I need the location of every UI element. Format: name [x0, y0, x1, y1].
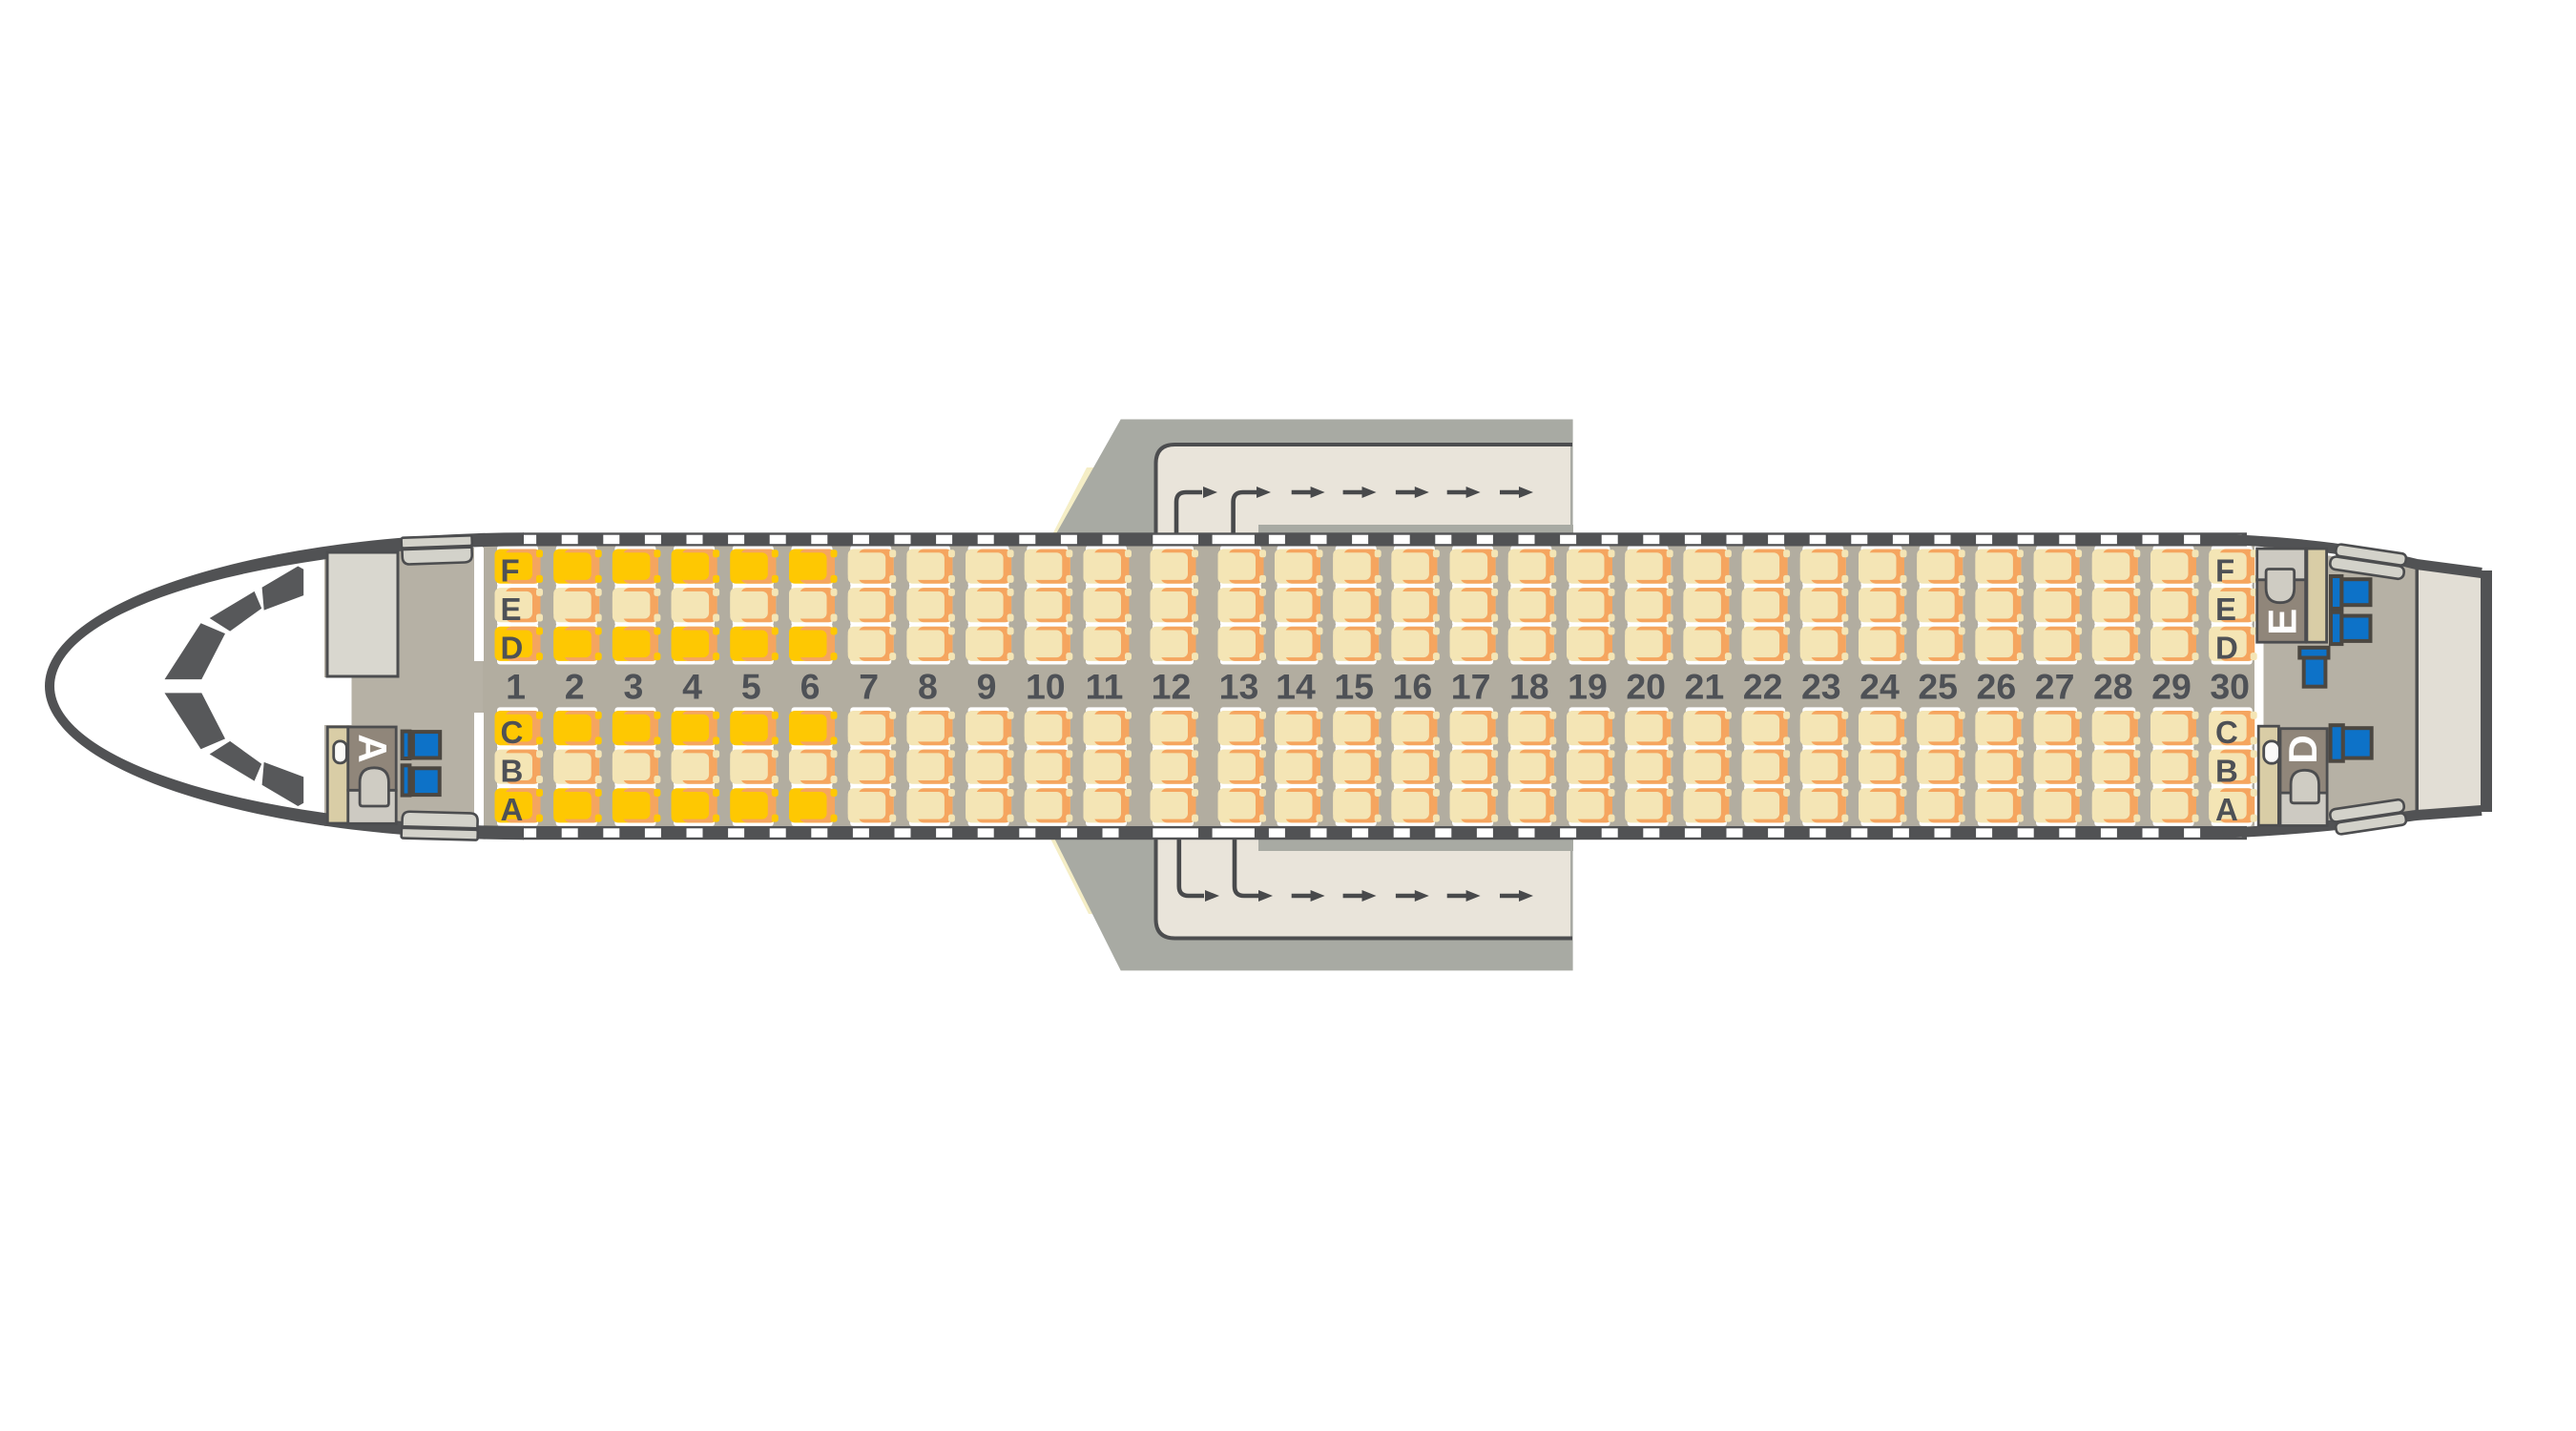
svg-text:16: 16 — [1393, 667, 1433, 707]
svg-text:2: 2 — [565, 667, 585, 707]
svg-text:C: C — [501, 715, 524, 750]
svg-text:28: 28 — [2093, 667, 2133, 707]
svg-text:29: 29 — [2151, 667, 2192, 707]
svg-text:19: 19 — [1568, 667, 1608, 707]
svg-text:D: D — [2215, 631, 2238, 666]
svg-text:20: 20 — [1626, 667, 1666, 707]
svg-text:21: 21 — [1685, 667, 1725, 707]
svg-text:24: 24 — [1859, 667, 1900, 707]
svg-text:12: 12 — [1152, 667, 1192, 707]
svg-text:8: 8 — [918, 667, 938, 707]
svg-text:18: 18 — [1509, 667, 1549, 707]
svg-text:14: 14 — [1276, 667, 1316, 707]
svg-text:F: F — [501, 553, 520, 589]
svg-text:22: 22 — [1743, 667, 1783, 707]
svg-text:4: 4 — [682, 667, 702, 707]
svg-text:A: A — [350, 734, 395, 762]
svg-text:E: E — [2259, 609, 2304, 635]
svg-text:6: 6 — [800, 667, 821, 707]
svg-text:D: D — [501, 631, 524, 666]
svg-text:15: 15 — [1334, 667, 1374, 707]
svg-text:B: B — [501, 754, 524, 789]
svg-text:26: 26 — [1977, 667, 2017, 707]
svg-text:5: 5 — [741, 667, 761, 707]
svg-text:C: C — [2215, 715, 2238, 750]
svg-text:D: D — [2280, 735, 2325, 763]
svg-text:B: B — [2215, 754, 2238, 789]
svg-text:A: A — [2215, 792, 2238, 827]
svg-text:1: 1 — [506, 667, 526, 707]
svg-text:7: 7 — [859, 667, 879, 707]
svg-text:17: 17 — [1451, 667, 1491, 707]
svg-text:10: 10 — [1026, 667, 1066, 707]
svg-text:23: 23 — [1801, 667, 1841, 707]
svg-text:E: E — [2215, 591, 2236, 627]
svg-text:3: 3 — [623, 667, 643, 707]
svg-text:E: E — [501, 591, 522, 627]
svg-text:27: 27 — [2035, 667, 2075, 707]
svg-text:A: A — [501, 792, 524, 827]
svg-text:25: 25 — [1918, 667, 1958, 707]
svg-text:F: F — [2215, 553, 2234, 589]
svg-text:13: 13 — [1219, 667, 1259, 707]
svg-text:11: 11 — [1086, 667, 1124, 707]
svg-text:30: 30 — [2210, 667, 2250, 707]
svg-text:9: 9 — [977, 667, 997, 707]
